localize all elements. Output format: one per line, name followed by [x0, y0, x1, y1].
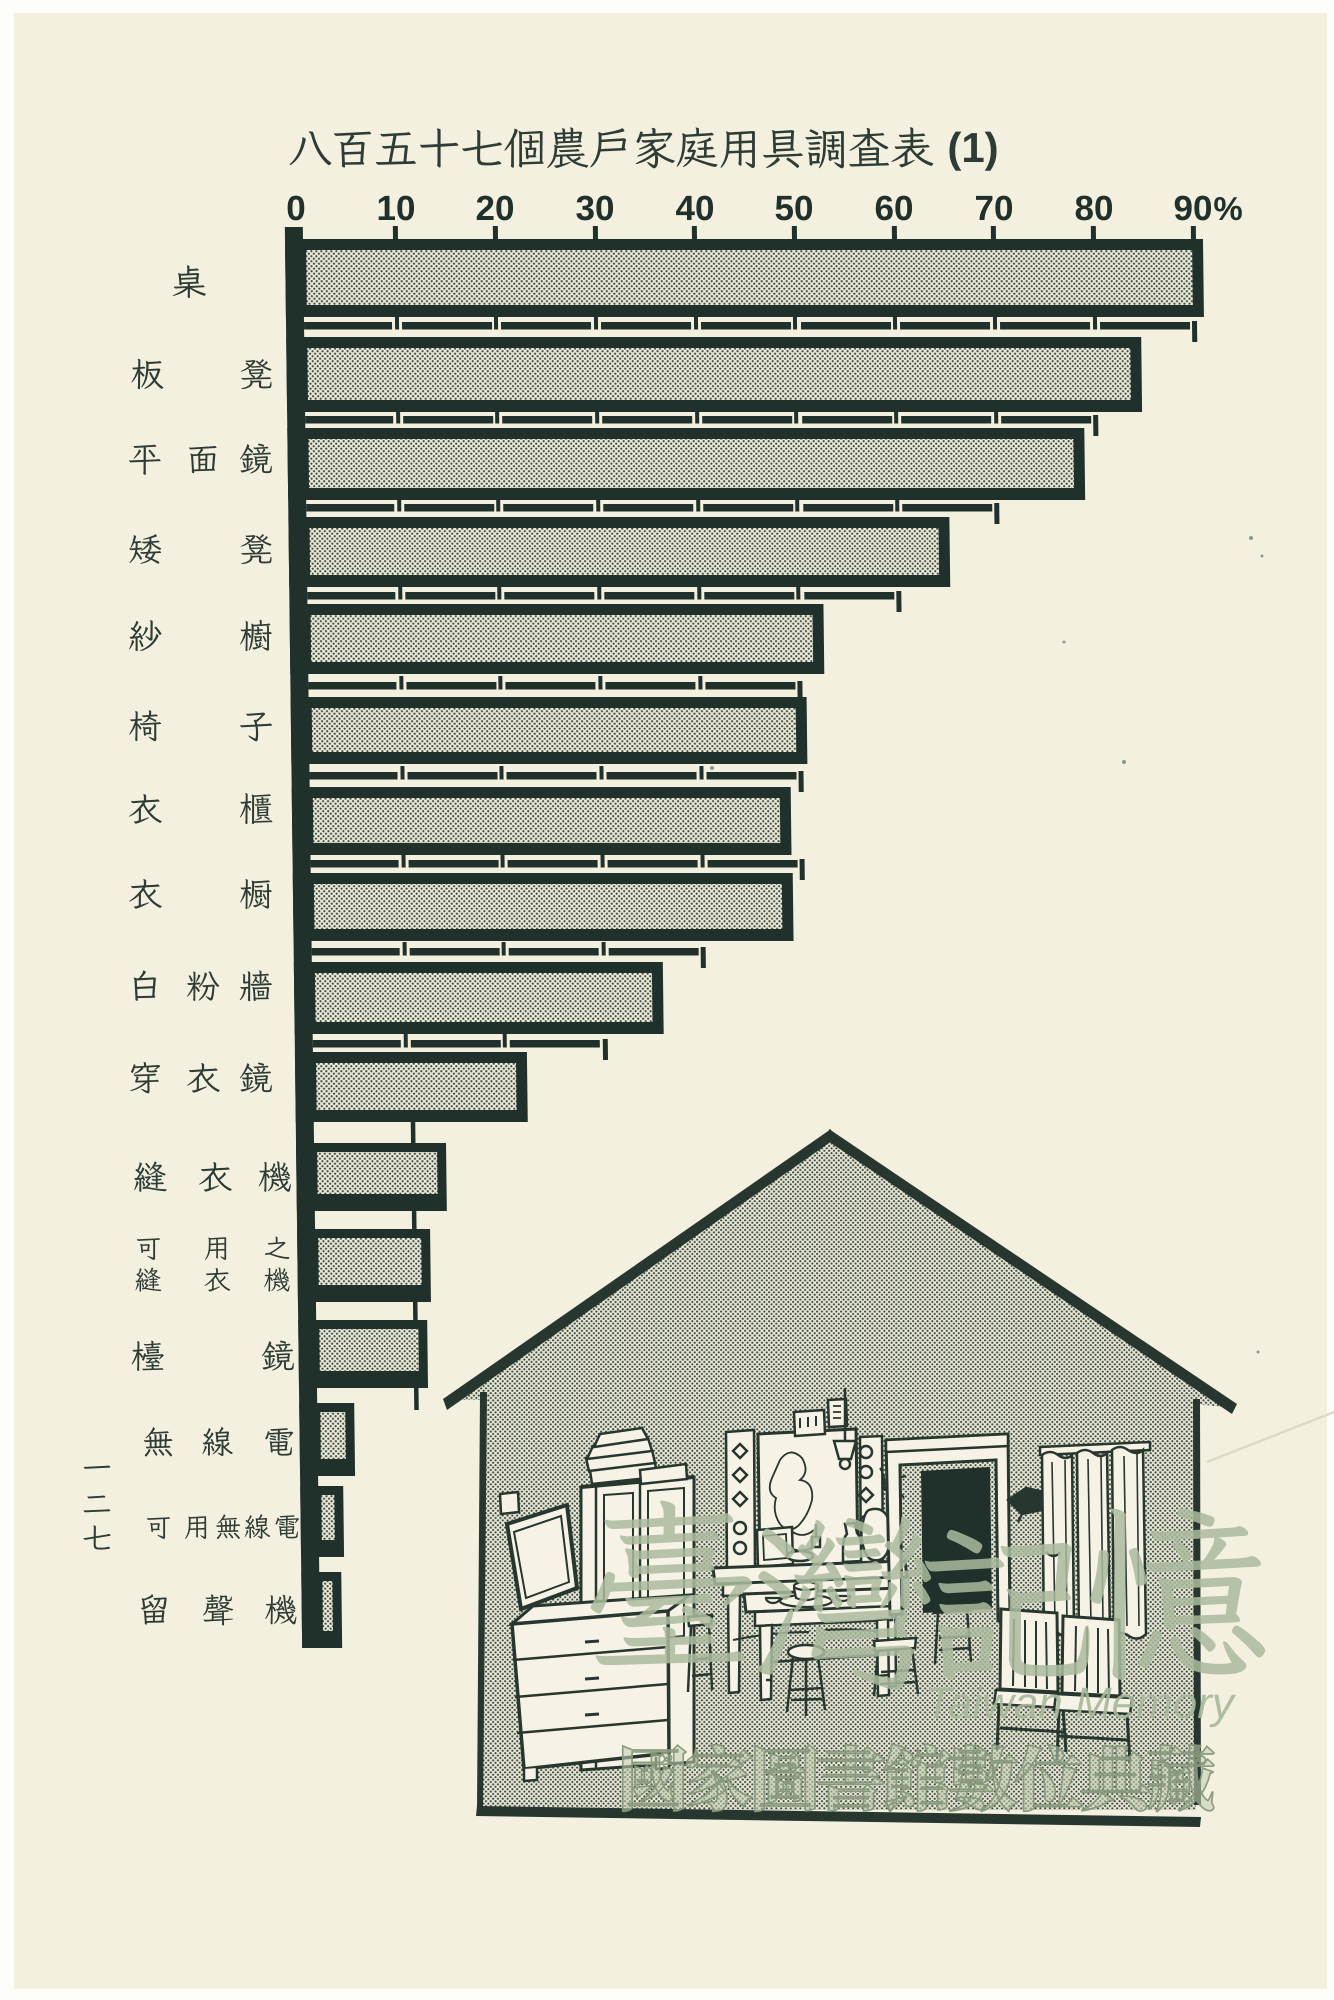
svg-text:70: 70 [975, 189, 1014, 228]
svg-text:80: 80 [1075, 189, 1114, 228]
svg-text:Taiwan Memory: Taiwan Memory [925, 1679, 1237, 1728]
svg-text:10: 10 [377, 189, 416, 228]
svg-text:20: 20 [476, 189, 515, 228]
svg-text:(1): (1) [947, 124, 998, 171]
svg-text:50: 50 [775, 189, 814, 228]
svg-text:90: 90 [1174, 189, 1213, 228]
svg-text:30: 30 [576, 189, 615, 228]
svg-text:%: % [1213, 190, 1242, 227]
svg-text:60: 60 [875, 189, 914, 228]
svg-text:40: 40 [676, 189, 715, 228]
svg-text:0: 0 [286, 189, 305, 228]
